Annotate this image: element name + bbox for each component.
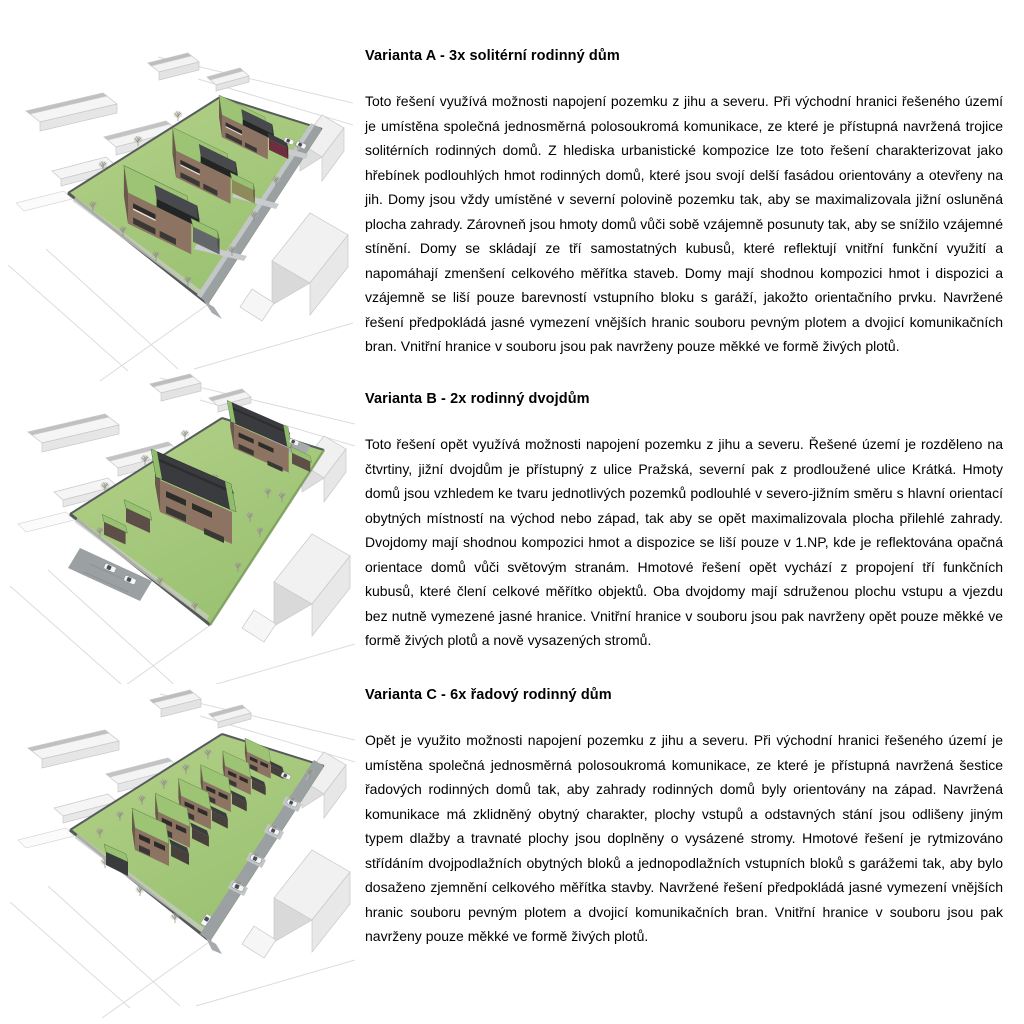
variant-c-heading-block: Varianta C - 6x řadový rodinný dům	[365, 687, 1003, 703]
variant-a-paragraph: Toto řešení využívá možnosti napojení po…	[365, 89, 1003, 359]
figure-variant-b	[10, 372, 355, 684]
variant-c-heading: Varianta C - 6x řadový rodinný dům	[365, 687, 1003, 703]
variant-b-body-block: Toto řešení opět využívá možnosti napoje…	[365, 432, 1003, 653]
report-page: { "document": { "language": "cs", "backg…	[0, 0, 1024, 1024]
variant-c-paragraph: Opět je využito možnosti napojení pozemk…	[365, 728, 1003, 949]
variant-a-heading: Varianta A - 3x solitérní rodinný dům	[365, 48, 1003, 64]
figure-variant-a	[8, 51, 353, 383]
variant-b-heading-block: Varianta B - 2x rodinný dvojdům	[365, 391, 1003, 407]
variant-b-heading: Varianta B - 2x rodinný dvojdům	[365, 391, 1003, 407]
axonometric-render-variant-a	[8, 51, 353, 383]
variant-a-heading-block: Varianta A - 3x solitérní rodinný dům	[365, 48, 1003, 64]
variant-b-paragraph: Toto řešení opět využívá možnosti napoje…	[365, 432, 1003, 653]
variant-a-body-block: Toto řešení využívá možnosti napojení po…	[365, 89, 1003, 359]
figure-variant-c	[10, 688, 355, 1020]
axonometric-render-variant-b	[10, 372, 355, 684]
variant-c-body-block: Opět je využito možnosti napojení pozemk…	[365, 728, 1003, 949]
axonometric-render-variant-c	[10, 688, 355, 1020]
